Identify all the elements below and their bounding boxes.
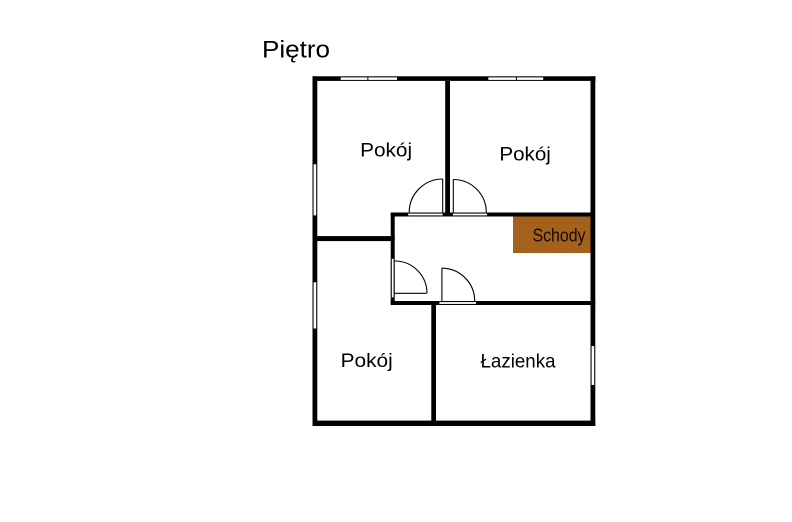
svg-text:Pokój: Pokój: [499, 143, 551, 165]
svg-text:Schody: Schody: [533, 226, 586, 246]
svg-text:Łazienka: Łazienka: [481, 351, 556, 373]
svg-text:Piętro: Piętro: [262, 37, 330, 64]
svg-text:Pokój: Pokój: [341, 350, 393, 372]
svg-text:Pokój: Pokój: [360, 140, 412, 162]
